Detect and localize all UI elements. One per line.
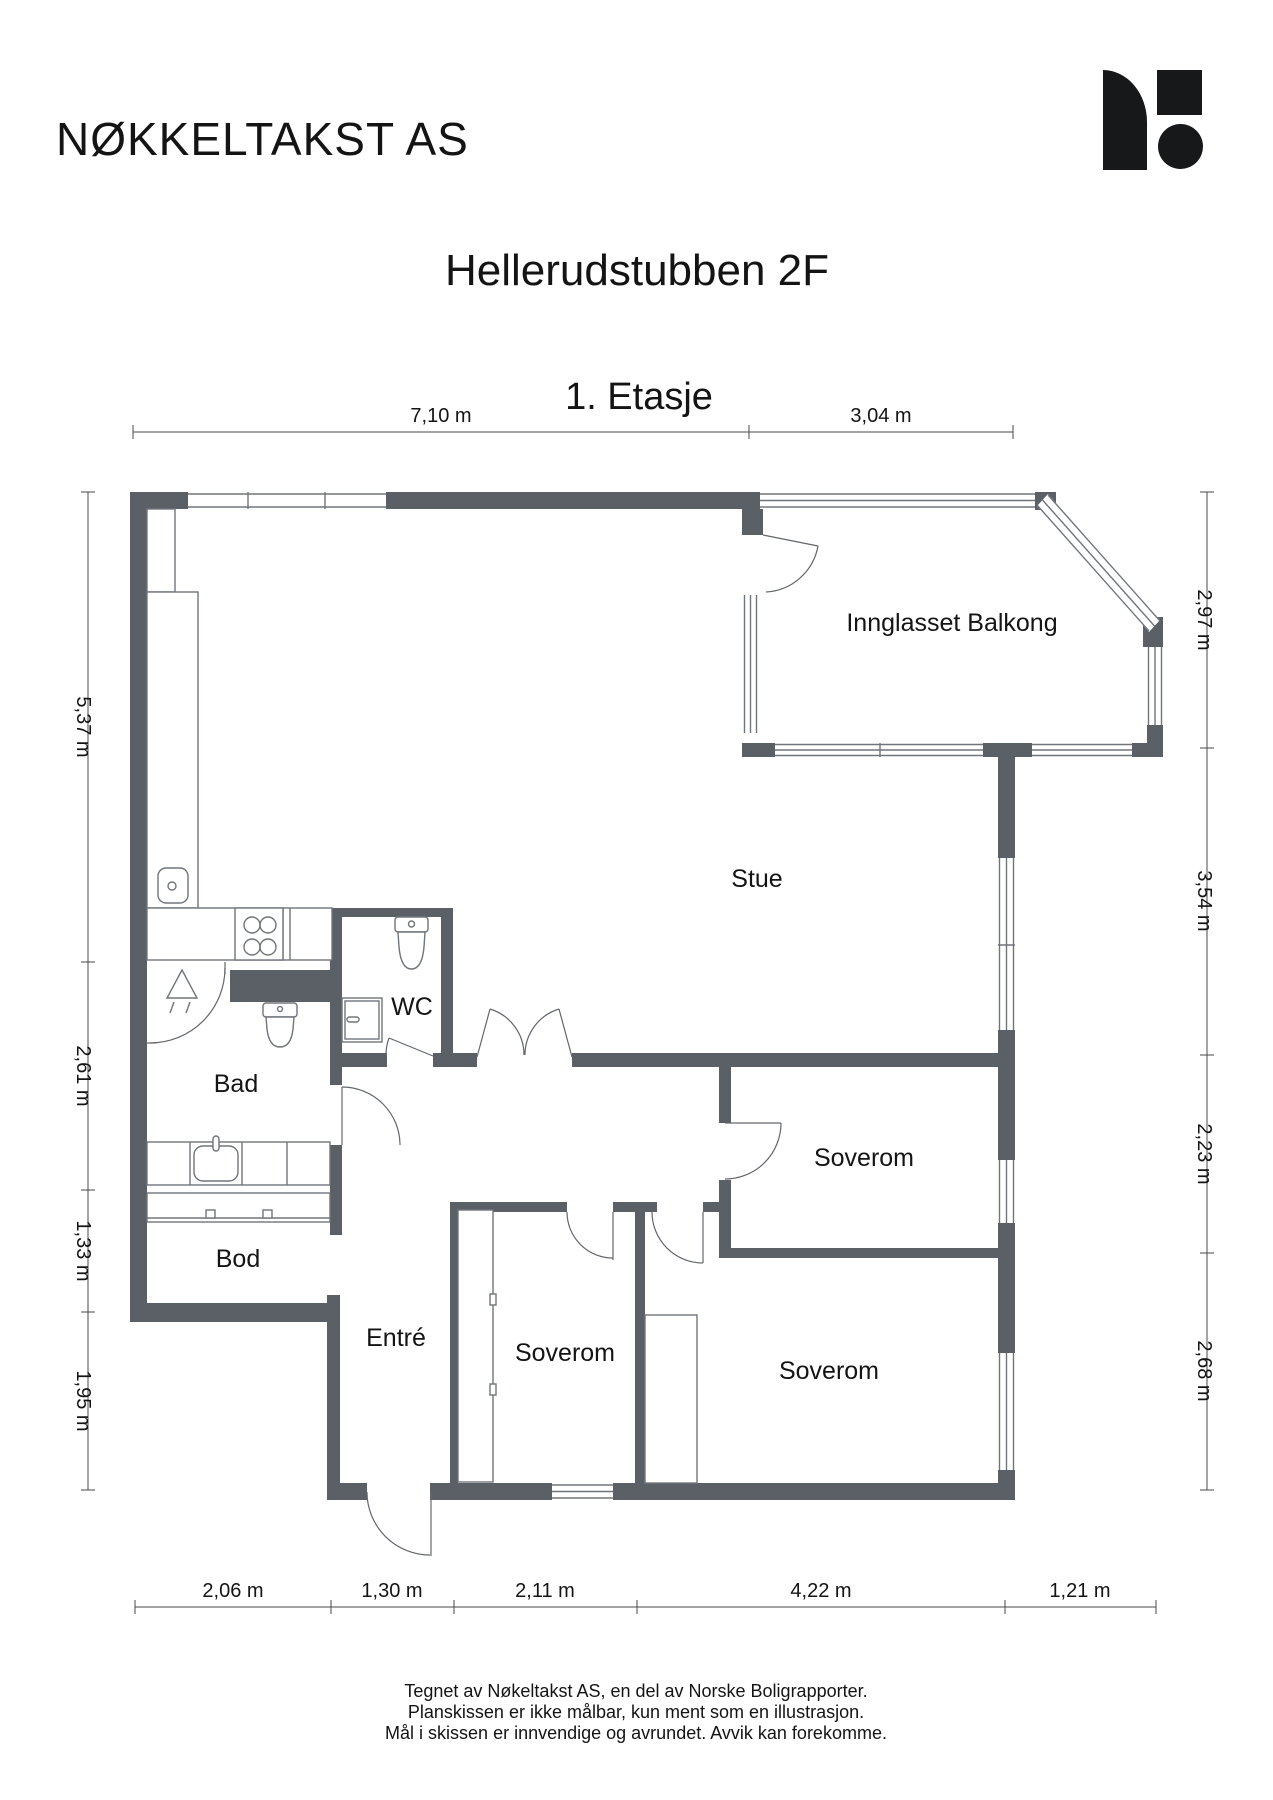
wardrobe — [458, 1210, 496, 1482]
toilet-icon — [395, 917, 428, 969]
room-label-bedroom-1: Soverom — [814, 1144, 914, 1172]
kitchen-sink-icon — [158, 868, 188, 903]
window — [998, 1160, 1015, 1223]
dim-right-3: 2,23 m — [1193, 1123, 1215, 1184]
room-label-bath: Bad — [214, 1070, 258, 1098]
storage-shelf — [147, 1193, 330, 1222]
window — [775, 743, 983, 757]
dim-top-1: 7,10 m — [410, 405, 471, 427]
room-label-wc: WC — [391, 993, 433, 1021]
dim-right-2: 3,54 m — [1193, 870, 1215, 931]
wc-door — [386, 1038, 433, 1056]
dim-left-3: 1,33 m — [72, 1220, 94, 1281]
dim-bottom-4: 4,22 m — [790, 1580, 851, 1602]
dim-bottom-5: 1,21 m — [1049, 1580, 1110, 1602]
window — [998, 1353, 1015, 1470]
bedroom-mid-right-door — [725, 1123, 781, 1179]
floor-plan-drawing: Innglasset Balkong Stue WC Bad Bod Entré… — [0, 0, 1273, 1800]
dim-bottom-1: 2,06 m — [202, 1580, 263, 1602]
room-label-balcony: Innglasset Balkong — [846, 609, 1057, 637]
balcony-door — [763, 535, 818, 592]
window — [1147, 647, 1163, 725]
stove-icon — [235, 908, 283, 960]
window — [743, 595, 758, 733]
window — [552, 1483, 613, 1500]
shower-icon — [144, 962, 225, 1043]
bath-door — [342, 1087, 400, 1145]
footer-line-1: Tegnet av Nøkeltakst AS, en del av Norsk… — [404, 1681, 867, 1702]
floor-plan-page: NØKKELTAKST AS Hellerudstubben 2F 1. Eta… — [0, 0, 1273, 1800]
window — [760, 492, 1035, 509]
room-label-storage: Bod — [216, 1245, 260, 1273]
dim-bottom-3: 2,11 m — [515, 1580, 575, 1602]
window — [188, 492, 386, 509]
window — [1032, 743, 1132, 757]
bedroom-right-door — [652, 1212, 703, 1263]
dim-top-2: 3,04 m — [850, 405, 911, 427]
room-label-entry: Entré — [366, 1324, 426, 1352]
dim-left-1: 5,37 m — [72, 696, 94, 757]
washbasin-icon — [147, 1136, 330, 1185]
footer-line-2: Planskissen er ikke målbar, kun ment som… — [408, 1702, 864, 1723]
dim-right-1: 2,97 m — [1193, 589, 1215, 650]
bedroom-mid-door — [567, 1212, 613, 1260]
footer-line-3: Mål i skissen er innvendige og avrundet.… — [385, 1723, 887, 1744]
room-label-bedroom-2: Soverom — [515, 1339, 615, 1367]
dim-left-2: 2,61 m — [72, 1045, 94, 1106]
window — [998, 858, 1015, 1030]
wc-cabinet — [342, 998, 382, 1042]
dim-bottom-2: 1,30 m — [361, 1580, 422, 1602]
dim-right-4: 2,68 m — [1193, 1340, 1215, 1401]
toilet-icon — [263, 1003, 297, 1047]
room-label-bedroom-3: Soverom — [779, 1357, 879, 1385]
double-door-living — [477, 1009, 572, 1057]
dim-left-4: 1,95 m — [72, 1370, 94, 1431]
wardrobe — [645, 1315, 697, 1483]
entry-door — [367, 1492, 431, 1556]
room-label-living: Stue — [731, 865, 782, 893]
